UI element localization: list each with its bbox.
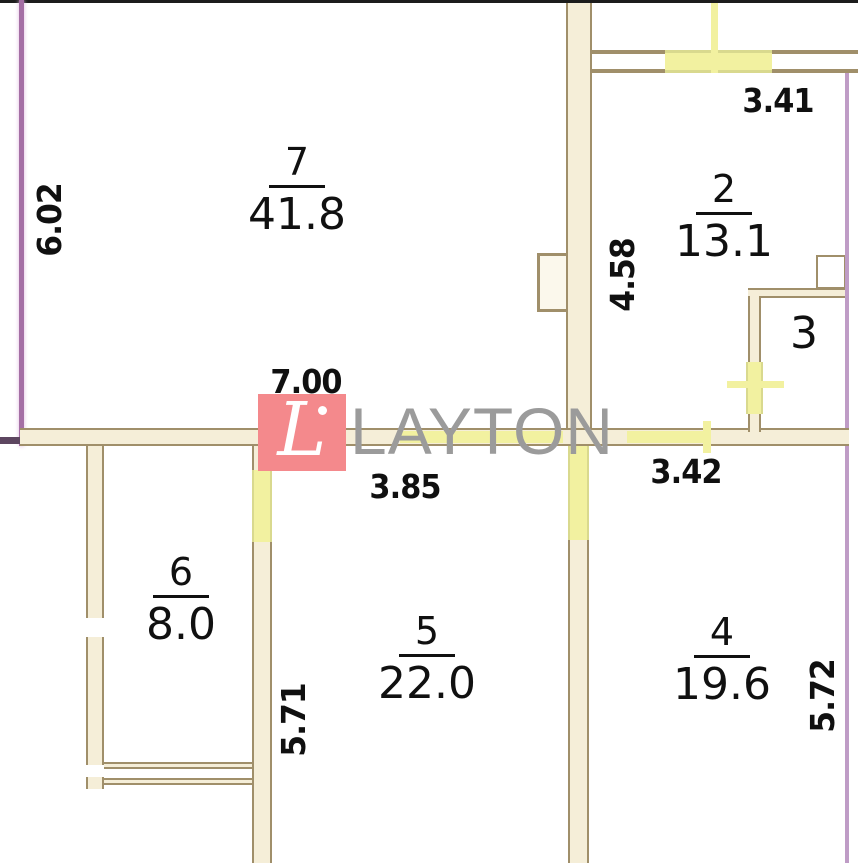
room2-label: 2 13.1 [654,168,794,267]
room5-area: 22.0 [352,659,502,709]
wall-room6-left-stub [86,777,104,789]
room5-number: 5 [399,610,455,657]
wall-room3-left-upper [748,296,761,364]
outer-wall-top [0,0,858,3]
window-room3 [746,362,763,414]
balcony-window-mullion [711,3,718,73]
wall-below-room6 [104,778,252,785]
dim-room2-height: 4.58 [605,229,641,320]
dim-room5-height: 5.71 [276,674,316,765]
dim-room4-height: 5.72 [805,650,845,741]
room4-number: 4 [694,611,750,658]
dim-room5-width: 3.85 [359,469,451,505]
shaft-niche-room2 [816,255,846,289]
room7-label: 7 41.8 [227,141,367,240]
balcony-sill-bottom-right [772,69,858,73]
outer-wall-right [845,72,849,863]
layton-logo-dot [318,406,327,415]
wall-room6-bottom [104,762,252,769]
room6-label: 6 8.0 [111,551,251,650]
balcony-sill-top-left [592,50,666,54]
room2-area: 13.1 [654,217,794,267]
room6-number: 6 [153,551,209,598]
window-room3-cross-arm [727,381,784,388]
floor-plan: L LAYTON 7 41.8 2 13.1 3 6 8.0 5 22.0 4 … [0,0,858,863]
door-jamb-mark [703,421,711,453]
dim-balcony-window: 3.41 [732,83,824,119]
room3-number: 3 [790,308,818,359]
room7-area: 41.8 [227,190,367,240]
room4-area: 19.6 [652,660,792,710]
room7-number: 7 [269,141,325,188]
dim-left-height: 6.02 [32,174,72,265]
wall-room6-left [86,446,104,765]
room6-area: 8.0 [111,600,251,650]
door-hall-room4 [627,431,703,443]
dim-room7-width: 7.00 [260,364,352,400]
layton-brand-text: LAYTON [350,395,614,467]
room2-number: 2 [696,168,752,215]
wall-room7-room2 [566,3,592,428]
outer-wall-left [19,0,24,446]
balcony-window [665,50,772,73]
room4-label: 4 19.6 [652,611,792,710]
wall-room3-top [748,288,845,298]
doorway-room6-left [84,618,106,637]
wall-room3-left-lower [748,412,761,432]
door-room6 [252,470,272,542]
balcony-sill-top-right [772,50,858,54]
balcony-sill-bottom-left [592,69,666,73]
dim-room4-width: 3.42 [640,454,732,490]
layton-logo: L [258,394,346,471]
room5-label: 5 22.0 [352,610,502,709]
